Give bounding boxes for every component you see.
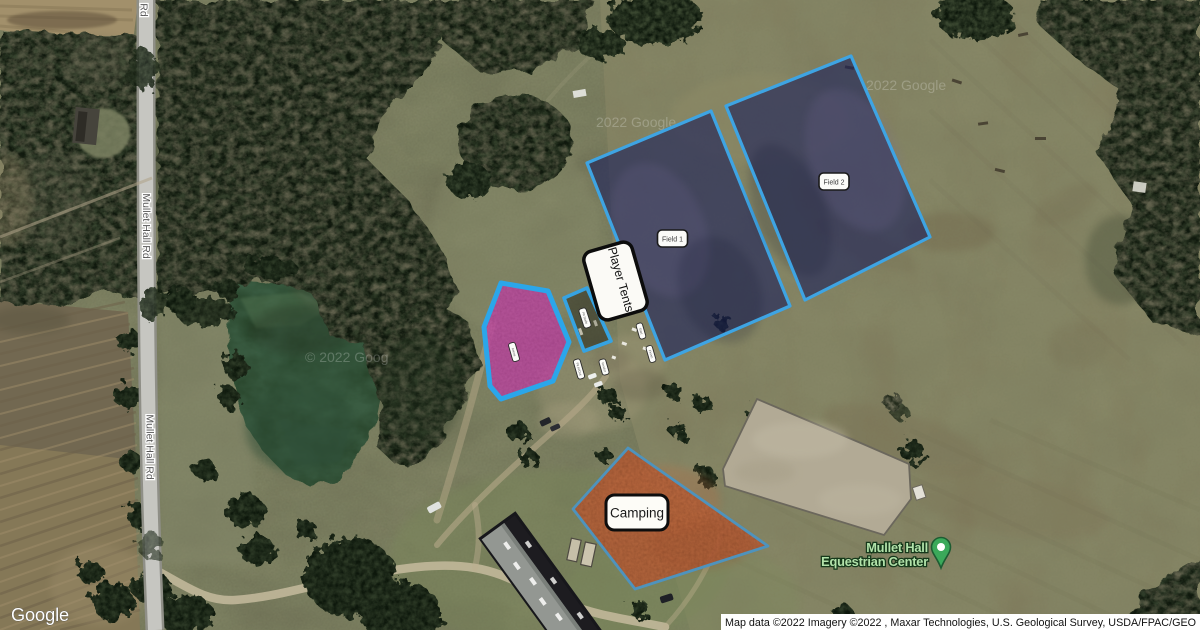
svg-text:2022 Google: 2022 Google <box>596 114 676 130</box>
svg-text:Camping: Camping <box>610 506 664 521</box>
svg-text:© 2022 Goog: © 2022 Goog <box>305 349 389 365</box>
svg-text:2022 Google: 2022 Google <box>866 77 946 93</box>
svg-text:Map data ©2022 Imagery ©2022 ,: Map data ©2022 Imagery ©2022 , Maxar Tec… <box>725 617 1196 629</box>
svg-text:Equestrian Center: Equestrian Center <box>821 554 928 569</box>
svg-text:Mullet Hall Rd: Mullet Hall Rd <box>140 193 152 259</box>
svg-text:Field 2: Field 2 <box>823 180 844 187</box>
svg-text:Rd: Rd <box>138 3 150 17</box>
svg-text:Mullet Hall Rd: Mullet Hall Rd <box>144 414 156 480</box>
svg-text:Google: Google <box>11 605 69 625</box>
svg-text:Field 1: Field 1 <box>662 237 683 244</box>
svg-text:Mullet Hall: Mullet Hall <box>866 540 928 555</box>
